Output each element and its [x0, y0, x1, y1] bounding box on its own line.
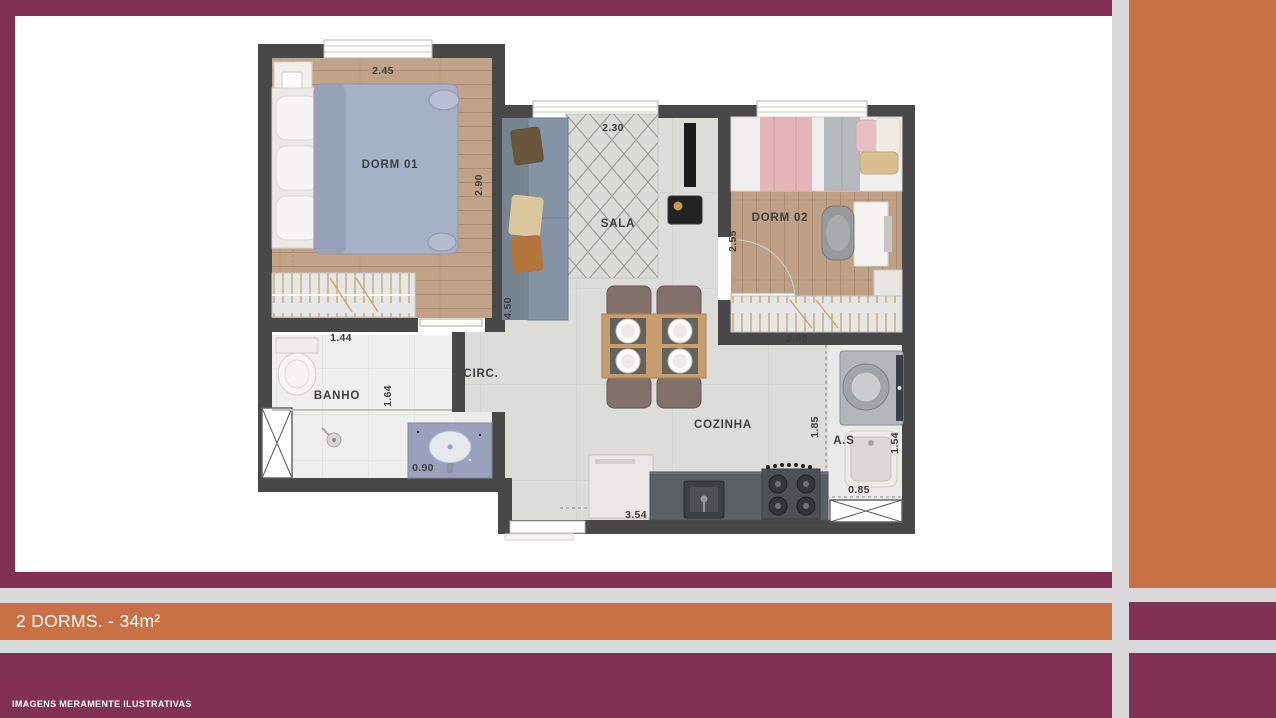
- dim-as-width: 0.85: [848, 484, 870, 496]
- pillow: [276, 146, 318, 190]
- toilet: [276, 338, 318, 395]
- dim-banho-width: 1.44: [330, 332, 352, 344]
- dining-chair: [657, 286, 701, 318]
- dining-chair: [607, 376, 651, 408]
- kitchen-sink: [684, 481, 724, 518]
- sofa: [502, 118, 568, 320]
- footer-bar: IMAGENS MERAMENTE ILUSTRATIVAS: [0, 653, 1112, 718]
- side-panel-bar: [1129, 602, 1276, 640]
- room-label-sala: SALA: [601, 218, 636, 230]
- pillow: [860, 152, 898, 174]
- dining-chair: [607, 286, 651, 318]
- dorm01-window: [324, 40, 432, 58]
- dim-dorm01-depth: 2.90: [473, 174, 485, 196]
- dorm02-bed: [731, 117, 902, 191]
- dorm02-desk: [854, 202, 892, 266]
- unit-banner-label: 2 DORMS. - 34m²: [16, 611, 161, 632]
- room-label-banho: BANHO: [314, 390, 360, 402]
- sofa-pillow-brown: [510, 126, 545, 166]
- dim-dorm01-width: 2.45: [372, 65, 394, 77]
- page: DORM 01 SALA DORM 02 BANHO CIRC. COZINHA…: [0, 0, 1276, 718]
- sofa-pillow-tan: [508, 194, 544, 237]
- pillow: [856, 120, 878, 152]
- side-panel-footer: [1129, 653, 1276, 718]
- unit-banner: 2 DORMS. - 34m²: [0, 603, 1112, 640]
- dim-sala-width: 2.30: [602, 122, 624, 134]
- dorm01-door: [420, 319, 482, 326]
- side-table: [668, 196, 702, 224]
- dim-lavatory-width: 0.90: [412, 462, 434, 474]
- as-shaft: [830, 500, 902, 522]
- side-panel-orange: [1129, 0, 1276, 588]
- dining-table: [602, 314, 706, 378]
- room-label-as: A.S: [833, 435, 855, 447]
- pillow: [276, 196, 318, 240]
- tv-panel: [684, 123, 696, 187]
- stove: [762, 463, 820, 519]
- slide-main-panel: DORM 01 SALA DORM 02 BANHO CIRC. COZINHA…: [0, 0, 1112, 588]
- dim-dorm02-depth: 2.55: [727, 230, 739, 252]
- dorm02-wardrobe: [731, 296, 902, 332]
- room-label-circ: CIRC.: [463, 368, 498, 380]
- floor-plan: DORM 01 SALA DORM 02 BANHO CIRC. COZINHA…: [15, 16, 1112, 572]
- footer-disclaimer: IMAGENS MERAMENTE ILUSTRATIVAS: [12, 699, 192, 709]
- sala-rug: [566, 114, 658, 278]
- plan-canvas: DORM 01 SALA DORM 02 BANHO CIRC. COZINHA…: [15, 16, 1112, 572]
- sofa-pillow-orange: [510, 235, 543, 273]
- entry-door: [505, 521, 585, 540]
- desk-chair: [822, 206, 854, 260]
- washing-machine: [840, 351, 903, 425]
- dorm02-window: [757, 101, 867, 118]
- dim-cozinha-depth: 1.85: [809, 416, 821, 438]
- banho-shaft: [262, 408, 292, 478]
- dim-cozinha-width: 3.54: [625, 509, 647, 521]
- as-fixtures: [840, 351, 903, 487]
- pillow: [876, 118, 900, 154]
- dining-chair: [657, 376, 701, 408]
- room-label-dorm02: DORM 02: [752, 212, 809, 224]
- dim-dorm02-width: 2.00: [786, 333, 808, 345]
- dim-as-depth: 1.54: [889, 432, 901, 454]
- dim-circ-depth: 4.50: [502, 297, 514, 319]
- dim-banho-depth: 1.64: [382, 385, 394, 407]
- room-label-cozinha: COZINHA: [694, 419, 752, 431]
- dorm01-wardrobe: [272, 273, 415, 317]
- pillow: [276, 96, 318, 140]
- room-label-dorm01: DORM 01: [362, 159, 419, 171]
